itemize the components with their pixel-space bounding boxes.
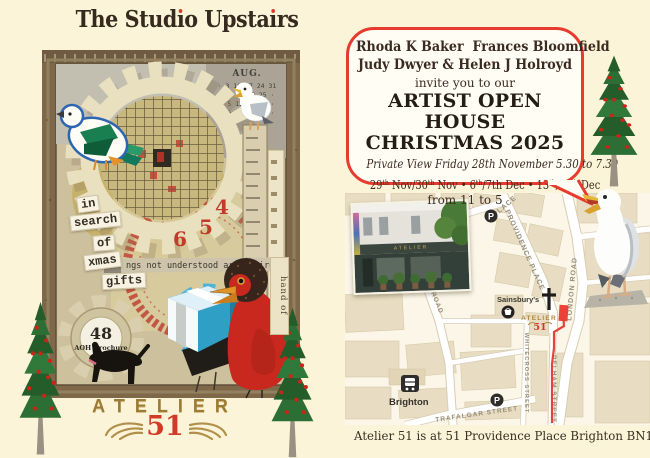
title-part: o Upsta — [184, 6, 269, 33]
bird-eye — [238, 278, 244, 284]
photo-tree-overhang — [430, 201, 468, 254]
host-names-line1: Rhoda K Baker Frances Bloomfield — [356, 38, 574, 56]
address-line: Atelier 51 is at 51 Providence Place Bri… — [354, 428, 638, 443]
invite-line: invite you to our — [349, 75, 581, 91]
clock-number-4: 4 — [215, 195, 229, 219]
seagull-illustration — [580, 184, 650, 314]
title-part: The Stud — [76, 6, 177, 33]
date-text: 29 — [370, 178, 383, 192]
photo-window — [363, 217, 373, 235]
chip-in: in — [76, 195, 100, 214]
dove-eye — [68, 112, 71, 115]
clock-number-5: 5 — [199, 215, 213, 239]
date-text: Nov • 6 — [434, 178, 476, 192]
clock-number-6: 6 — [173, 227, 187, 251]
event-title-line2: CHRISTMAS 2025 — [349, 133, 581, 154]
gull-eye — [603, 195, 607, 199]
sainsburys-label: Sainsbury's — [497, 295, 539, 304]
title-part: rs — [277, 6, 299, 33]
speech-bubble: Rhoda K Baker Frances Bloomfield Judy Dw… — [346, 27, 584, 185]
title-red-dot-i: ı — [269, 6, 276, 33]
hand-of-strip: hand of — [270, 257, 289, 335]
chip-of: of — [92, 234, 115, 252]
parking-letter: P — [488, 212, 494, 222]
title-red-dot-i: ı — [177, 6, 184, 33]
parking-icon-bottom: P — [491, 394, 504, 407]
parking-letter: P — [494, 396, 500, 406]
map-atelier-word: ATELIER — [521, 315, 557, 322]
private-view-line: Private View Friday 28th November 5.30 t… — [366, 156, 563, 172]
host-names-line2: Judy Dwyer & Helen J Holroyd — [356, 56, 574, 74]
station-label: Brighton — [389, 397, 429, 408]
open-dates-line: 29th Nov/30th Nov • 6th/7th Dec • 13th/1… — [370, 175, 560, 193]
calendar-month: AUG. — [231, 69, 261, 79]
badge-number: 48 — [90, 324, 112, 343]
storefront-photo: ATELIER — [350, 199, 471, 295]
christmas-tree — [582, 54, 646, 188]
date-text: Nov/30 — [389, 178, 428, 192]
chip-gifts: gifts — [102, 272, 147, 290]
collage-artwork: AUG. · 3 10 17 24 31 · 4 11 18 25 · · 5 … — [0, 0, 335, 458]
photo-plants — [355, 263, 470, 293]
event-title-line1: ARTIST OPEN HOUSE — [349, 91, 581, 133]
right-wing-icon — [187, 421, 229, 441]
photo-window — [411, 216, 421, 234]
photo-window — [379, 217, 389, 235]
parking-icon-top: P — [485, 210, 498, 223]
street-label-whitecross-street: WHITECROSS STREET — [523, 333, 529, 414]
flyer-page: The Studıo Upstaırs — [0, 0, 650, 458]
left-wing-icon — [103, 421, 145, 441]
page-title: The Studıo Upstaırs — [75, 6, 300, 33]
